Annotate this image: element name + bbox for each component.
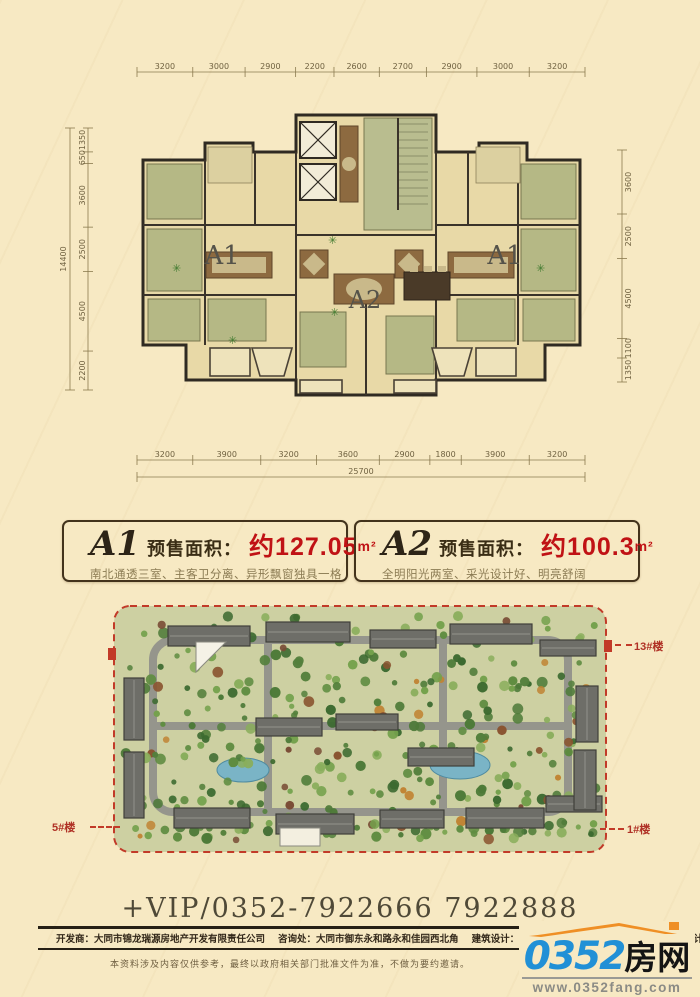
- unit-box-a2: A2 预售面积： 约100.3m² 全明阳光两室、采光设计好、明亮舒阔: [354, 520, 640, 582]
- svg-text:25700: 25700: [348, 467, 373, 476]
- svg-text:3600: 3600: [338, 450, 358, 459]
- svg-text:2200: 2200: [78, 360, 87, 380]
- svg-text:4500: 4500: [624, 288, 633, 308]
- logo-website-url: www.0352fang.com: [522, 977, 692, 995]
- logo-chinese-text: 房网: [624, 942, 690, 973]
- svg-text:3600: 3600: [78, 185, 87, 205]
- svg-text:1350: 1350: [78, 130, 87, 150]
- svg-text:3000: 3000: [209, 62, 229, 71]
- svg-text:2900: 2900: [394, 450, 414, 459]
- vip-phone-number: +VIP/0352-7922666 7922888: [0, 893, 700, 924]
- svg-text:650: 650: [78, 150, 87, 165]
- building-1-leader-line: [600, 828, 624, 830]
- unit-a2-name: A2: [382, 529, 432, 560]
- 0352fang-logo: 0352 房网 www.0352fang.com: [519, 921, 695, 997]
- svg-text:2900: 2900: [260, 62, 280, 71]
- svg-text:3200: 3200: [155, 62, 175, 71]
- svg-text:3200: 3200: [155, 450, 175, 459]
- svg-text:3200: 3200: [547, 62, 567, 71]
- svg-text:1100: 1100: [624, 338, 633, 358]
- unit-box-a1: A1 预售面积： 约127.05m² 南北通透三室、主客卫分离、异形飘窗独具一格: [62, 520, 348, 582]
- svg-text:2500: 2500: [78, 239, 87, 259]
- svg-text:2200: 2200: [305, 62, 325, 71]
- svg-text:2500: 2500: [624, 226, 633, 246]
- svg-text:✳: ✳: [330, 307, 339, 319]
- building-5-label: 5#楼: [52, 819, 75, 835]
- unit-a1-name: A1: [90, 529, 140, 560]
- svg-text:3900: 3900: [217, 450, 237, 459]
- svg-text:✳: ✳: [328, 235, 337, 247]
- svg-text:2900: 2900: [441, 62, 461, 71]
- poster-page: ✳ ✳ ✳ ✳ ✳ A1 A2 A1 320030002900220026002…: [0, 0, 700, 997]
- plan-label-a1-right: A1: [486, 241, 522, 271]
- building-13-label: 13#楼: [634, 638, 663, 654]
- svg-text:3200: 3200: [278, 450, 298, 459]
- site-plan-rendering: [108, 600, 612, 858]
- svg-text:4500: 4500: [78, 301, 87, 321]
- unit-a2-description: 全明阳光两室、采光设计好、明亮舒阔: [382, 566, 638, 582]
- plan-label-a1-left: A1: [203, 241, 239, 271]
- svg-text:3000: 3000: [493, 62, 513, 71]
- svg-text:3200: 3200: [547, 450, 567, 459]
- svg-text:3600: 3600: [624, 172, 633, 192]
- svg-text:3900: 3900: [485, 450, 505, 459]
- svg-text:✳: ✳: [536, 263, 545, 275]
- unit-a1-description: 南北通透三室、主客卫分离、异形飘窗独具一格: [90, 566, 346, 582]
- plan-label-a2: A2: [348, 286, 382, 314]
- building-13-leader-line: [604, 644, 632, 646]
- building-5-leader-line: [90, 826, 120, 828]
- svg-text:✳: ✳: [172, 263, 181, 275]
- unit-a1-field-label: 预售面积：: [147, 535, 242, 561]
- building-1-label: 1#楼: [627, 821, 650, 837]
- unit-a2-field-label: 预售面积：: [439, 535, 534, 561]
- unit-a2-area: 约100.3m²: [541, 527, 654, 563]
- disclaimer-text: 本资料涉及内容仅供参考，最终以政府相关部门批准文件为准，不做为要约邀请。: [0, 957, 580, 970]
- svg-text:2700: 2700: [393, 62, 413, 71]
- svg-text:14400: 14400: [59, 246, 68, 271]
- svg-text:1350: 1350: [624, 360, 633, 380]
- svg-text:✳: ✳: [228, 335, 237, 347]
- logo-number: 0352: [524, 938, 625, 975]
- floor-plan-drawing: ✳ ✳ ✳ ✳ ✳ A1 A2 A1 320030002900220026002…: [0, 0, 700, 500]
- svg-text:1800: 1800: [435, 450, 455, 459]
- svg-text:2600: 2600: [346, 62, 366, 71]
